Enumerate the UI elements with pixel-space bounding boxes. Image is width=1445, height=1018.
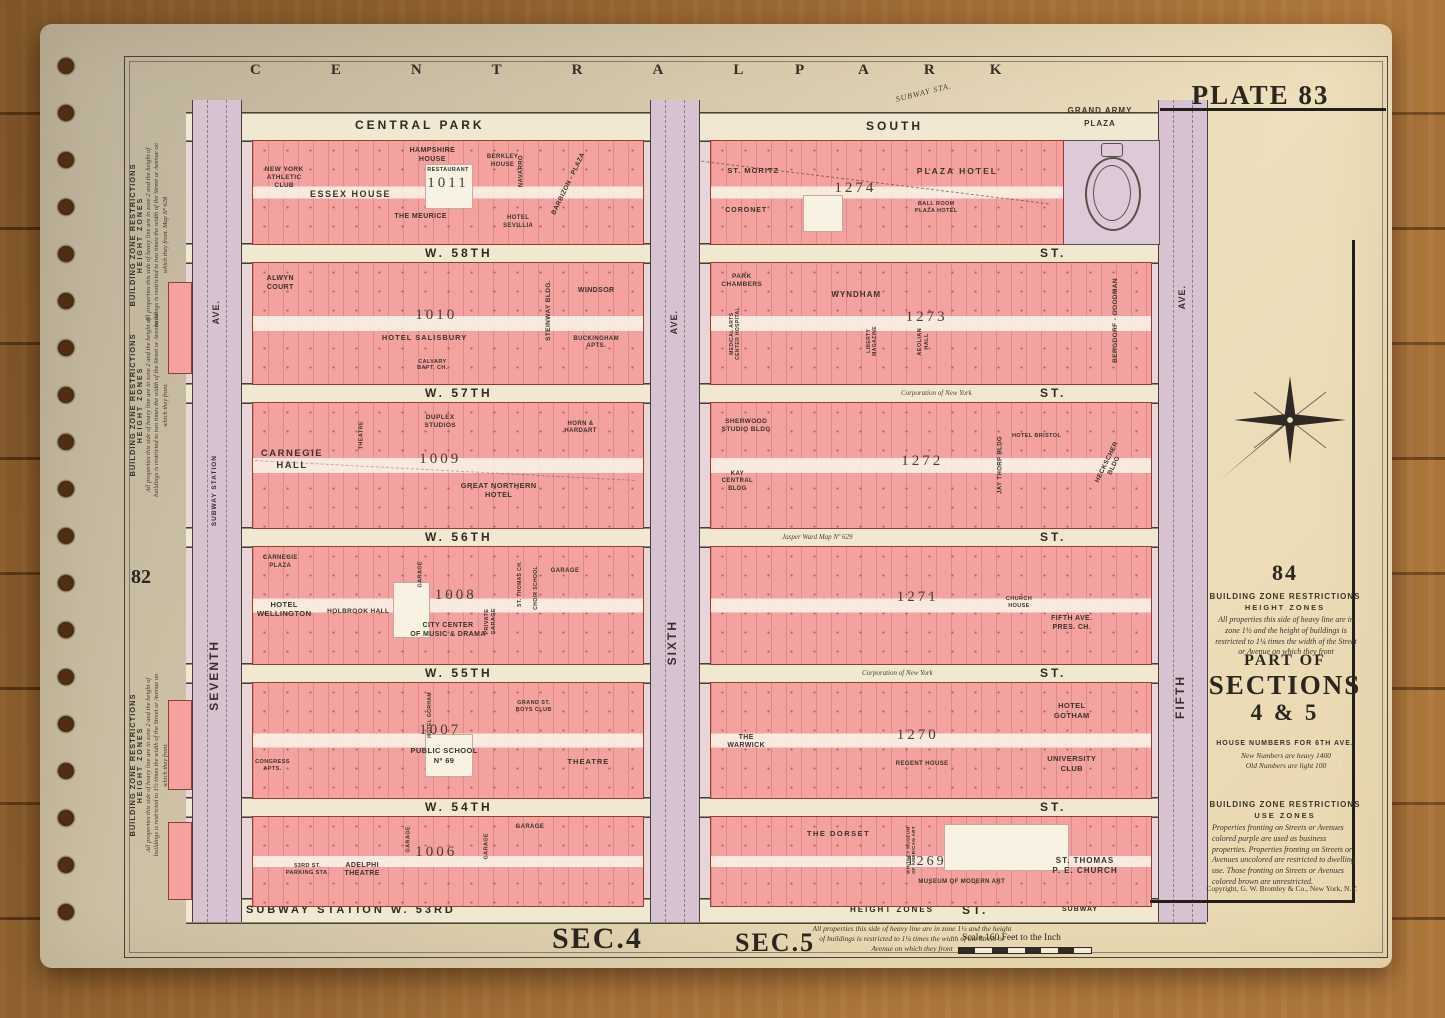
block-1272: 1272 SHERWOOD STUDIO BLDG KAY CENTRAL BL… bbox=[710, 402, 1152, 529]
label-buckingham: BUCKINGHAM APTS. bbox=[573, 336, 619, 351]
w56-label: W. 56TH bbox=[425, 530, 493, 544]
note-subheading: HEIGHT ZONES bbox=[137, 670, 144, 860]
label-garage-b: GARAGE bbox=[551, 568, 580, 576]
fifth-ave-ave: AVE. bbox=[1177, 285, 1187, 309]
label-congress-apts: CONGRESS APTS. bbox=[255, 759, 290, 773]
grand-army-plaza bbox=[1062, 140, 1160, 245]
w55-st: ST. bbox=[1040, 666, 1066, 680]
label-heckscher: HECKSCHER BLDG bbox=[1094, 440, 1128, 487]
label-wyndham: WYNDHAM bbox=[831, 290, 881, 300]
note-body: All properties this side of heavy line a… bbox=[145, 140, 170, 330]
cps-south-label: SOUTH bbox=[866, 119, 923, 133]
label-medical-arts: MEDICAL ARTS CENTER HOSPITAL bbox=[729, 307, 742, 360]
w58-label: W. 58TH bbox=[425, 246, 493, 260]
label-aeolian-hall: AEOLIAN HALL bbox=[918, 328, 932, 356]
moma-garden-cutout bbox=[944, 824, 1069, 871]
label-windsor: WINDSOR bbox=[578, 287, 615, 296]
label-restaurant: RESTAURANT bbox=[427, 167, 468, 174]
block-1010: 1010 ALWYN COURT HOTEL SALISBURY CALVARY… bbox=[252, 262, 644, 385]
block-number-1006: 1006 bbox=[415, 844, 457, 861]
central-park-title-left: CENTRAL bbox=[250, 62, 813, 79]
block-number-1274: 1274 bbox=[834, 180, 876, 197]
use-zones-body: Properties fronting on Streets or Avenue… bbox=[1212, 823, 1360, 888]
photo-scene: CENTRAL PARK SUBWAY STA. PLATE 83 CENTRA… bbox=[0, 0, 1445, 1018]
sec4-label: SEC.4 bbox=[552, 922, 643, 956]
label-parking-sta: 53RD ST. PARKING STA. bbox=[286, 863, 329, 877]
compass-rose bbox=[1210, 372, 1360, 487]
block-number-1008: 1008 bbox=[435, 587, 477, 604]
block-1274: 1274 ST. MORITZ CORONET PLAZA HOTEL BALL… bbox=[710, 140, 1064, 245]
left-zone-note-2: BUILDING ZONE RESTRICTIONS HEIGHT ZONES … bbox=[128, 310, 184, 500]
scale-label: Scale 160 Feet to the Inch bbox=[962, 933, 1061, 943]
w55-corp-note: Corporation of New York bbox=[862, 669, 933, 677]
label-calvary-bapt: CALVARY BAPT. CH. bbox=[417, 359, 448, 373]
note-heading: BUILDING ZONE RESTRICTIONS bbox=[128, 670, 137, 860]
label-garage-1006b: GARAGE bbox=[484, 833, 491, 860]
sections-number: 4 & 5 bbox=[1205, 700, 1365, 726]
block-1006: 1006 53RD ST. PARKING STA. ADELPHI THEAT… bbox=[252, 816, 644, 907]
label-alwyn-court: ALWYN COURT bbox=[267, 275, 294, 293]
label-hampshire-house: HAMPSHIRE HOUSE bbox=[410, 147, 456, 165]
w54-st: ST. bbox=[1040, 800, 1066, 814]
label-fifth-ave-pres: FIFTH AVE. PRES. CH. bbox=[1051, 615, 1092, 633]
block-1011: 1011 NEW YORK ATHLETIC CLUB ESSEX HOUSE … bbox=[252, 140, 644, 245]
w54-label: W. 54TH bbox=[425, 800, 493, 814]
w56-jasper-note: Jasper Ward Map Nº 629 bbox=[782, 533, 853, 541]
label-carnegie-plaza: CARNEGIE PLAZA bbox=[263, 555, 298, 570]
label-liberty-magazine: LIBERTY MAGAZINE bbox=[865, 326, 878, 356]
label-private-garage: PRIVATE GARAGE bbox=[484, 608, 498, 635]
label-kay-central: KAY CENTRAL BLDG bbox=[722, 471, 753, 494]
sec5-label: SEC.5 bbox=[735, 928, 815, 958]
label-hotel-bristol: HOTEL BRISTOL bbox=[1012, 433, 1061, 440]
block-1009: 1009 CARNEGIE HALL THEATRE DUPLEX STUDIO… bbox=[252, 402, 644, 529]
house-numbers-heading: HOUSE NUMBERS FOR 6TH AVE. bbox=[1216, 740, 1354, 749]
label-berkley-house: BERKLEY HOUSE bbox=[487, 154, 518, 169]
label-barbizon-plaza: BARBIZON - PLAZA bbox=[550, 152, 587, 217]
sixth-ave-label: SIXTH bbox=[665, 620, 679, 665]
note-body: All properties this side of heavy line a… bbox=[145, 310, 170, 500]
block-number-1007: 1007 bbox=[419, 722, 461, 739]
courtyard-cutout bbox=[803, 195, 844, 232]
right-bzr-subheading: HEIGHT ZONES bbox=[1245, 603, 1325, 612]
block-number-1009: 1009 bbox=[419, 451, 461, 468]
adjacent-plate-82: 82 bbox=[131, 566, 151, 589]
label-nyac: NEW YORK ATHLETIC CLUB bbox=[265, 166, 304, 190]
label-theatre-54: THEATRE bbox=[567, 757, 609, 766]
block-number-1010: 1010 bbox=[415, 307, 457, 324]
label-choir-school: CHOIR SCHOOL bbox=[533, 566, 539, 610]
sections-label: SECTIONS bbox=[1200, 670, 1370, 701]
label-hotel-wellington: HOTEL WELLINGTON bbox=[257, 600, 311, 619]
block-1270: 1270 THE WARWICK REGENT HOUSE HOTEL GOTH… bbox=[710, 682, 1152, 799]
label-steinway-bldg: STEINWAY BLDG. bbox=[545, 280, 553, 341]
label-the-dorset: THE DORSET bbox=[807, 829, 870, 838]
note-subheading: HEIGHT ZONES bbox=[137, 140, 144, 330]
label-st-thomas-ch: ST. THOMAS CH. bbox=[517, 561, 523, 607]
plaza-fountain-inner bbox=[1093, 165, 1131, 221]
label-holbrook-hall: HOLBROOK HALL bbox=[327, 608, 389, 616]
label-st-thomas-church: ST. THOMAS P. E. CHURCH bbox=[1052, 856, 1117, 876]
note-heading: BUILDING ZONE RESTRICTIONS bbox=[128, 140, 137, 330]
left-zone-note-3: BUILDING ZONE RESTRICTIONS HEIGHT ZONES … bbox=[128, 670, 184, 860]
left-zone-note-1: BUILDING ZONE RESTRICTIONS HEIGHT ZONES … bbox=[128, 140, 184, 330]
label-horn-hardart: HORN & HARDART bbox=[564, 421, 596, 436]
w57-label: W. 57TH bbox=[425, 386, 493, 400]
w57-st: ST. bbox=[1040, 386, 1066, 400]
plate-title: PLATE 83 bbox=[1168, 80, 1353, 111]
label-garage-1006a: GARAGE bbox=[406, 826, 413, 853]
label-university-club: UNIVERSITY CLUB bbox=[1047, 754, 1096, 773]
label-bergdorf-goodman: BERGDORF - GOODMAN bbox=[1112, 278, 1120, 363]
grand-army-label-2: PLAZA bbox=[1084, 119, 1116, 129]
label-hotel-gotham: HOTEL GOTHAM bbox=[1054, 701, 1090, 720]
note-subheading: HEIGHT ZONES bbox=[137, 310, 144, 500]
label-hotel-gorham: HOTEL GORHAM bbox=[427, 692, 433, 738]
note-heading: BUILDING ZONE RESTRICTIONS bbox=[128, 310, 137, 500]
seventh-ave-ave: AVE. bbox=[211, 300, 221, 324]
label-ballroom: BALL ROOM PLAZA HOTEL bbox=[915, 201, 958, 215]
block-1271: 1271 CHURCH HOUSE FIFTH AVE. PRES. CH. bbox=[710, 546, 1152, 665]
label-sherwood-studio: SHERWOOD STUDIO BLDG bbox=[722, 418, 771, 434]
label-regent-house: REGENT HOUSE bbox=[896, 761, 949, 769]
w58-st: ST. bbox=[1040, 246, 1066, 260]
plaza-monument bbox=[1101, 143, 1123, 157]
use-zones-subheading: USE ZONES bbox=[1254, 811, 1315, 820]
label-the-warwick: THE WARWICK bbox=[727, 734, 765, 752]
label-public-school-69: PUBLIC SCHOOL Nº 69 bbox=[410, 746, 477, 765]
grand-army-label-1: GRAND ARMY bbox=[1068, 106, 1133, 116]
label-church-house: CHURCH HOUSE bbox=[1006, 596, 1032, 610]
label-garage-1006c: GARAGE bbox=[516, 824, 545, 832]
sixth-avenue: SIXTH AVE. bbox=[650, 100, 700, 922]
label-coronet: CORONET bbox=[725, 207, 767, 216]
label-plaza-hotel: PLAZA HOTEL bbox=[917, 166, 998, 177]
label-city-center: CITY CENTER OF MUSIC & DRAMA bbox=[410, 622, 486, 640]
fifth-avenue: FIFTH AVE. bbox=[1158, 100, 1208, 922]
label-jay-thorp: JAY THORP BLDG bbox=[998, 436, 1006, 494]
block-number-1272: 1272 bbox=[901, 453, 943, 470]
binder-holes bbox=[56, 52, 76, 947]
label-moma: MUSEUM OF MODERN ART bbox=[918, 879, 1005, 887]
w55-label: W. 55TH bbox=[425, 666, 493, 680]
right-bzr-heading: BUILDING ZONE RESTRICTIONS bbox=[1210, 592, 1361, 602]
seventh-avenue: SEVENTH AVE. SUBWAY STATION bbox=[192, 100, 242, 922]
fifth-ave-label: FIFTH bbox=[1173, 675, 1187, 719]
w53-subway: SUBWAY bbox=[1062, 906, 1098, 913]
label-garage-a: GARAGE bbox=[417, 561, 424, 588]
label-essex-house: ESSEX HOUSE bbox=[310, 189, 391, 200]
seventh-ave-label: SEVENTH bbox=[207, 640, 221, 711]
label-navarro: NAVARRO bbox=[518, 155, 526, 187]
central-park-title-right: PARK bbox=[795, 62, 1056, 79]
use-zones-heading: BUILDING ZONE RESTRICTIONS bbox=[1210, 800, 1361, 810]
note-body: All properties this side of heavy line a… bbox=[145, 670, 170, 860]
label-adelphi-theatre: ADELPHI THEATRE bbox=[345, 862, 380, 880]
label-hotel-sevillia: HOTEL SEVILLIA bbox=[503, 215, 533, 230]
block-1007: 1007 CONGRESS APTS. HOTEL GORHAM PUBLIC … bbox=[252, 682, 644, 799]
block-number-1273: 1273 bbox=[906, 309, 948, 326]
seventh-ave-subway-station: SUBWAY STATION bbox=[211, 455, 218, 526]
label-hotel-salisbury: HOTEL SALISBURY bbox=[382, 333, 467, 342]
margin-heavy-hline bbox=[1150, 900, 1355, 903]
w57-corp-note: Corporation of New York bbox=[901, 389, 972, 397]
part-of-label: PART OF bbox=[1205, 652, 1365, 670]
scale-bar bbox=[958, 947, 1092, 954]
block-number-1271: 1271 bbox=[897, 589, 939, 606]
house-numbers-line2: Old Numbers are light 100 bbox=[1212, 761, 1360, 771]
label-theatre-56: THEATRE bbox=[359, 421, 366, 449]
block-1269: 1269 THE DORSET WHITNEY MUSEUM OF AMERIC… bbox=[710, 816, 1152, 907]
block-1008: 1008 CARNEGIE PLAZA HOTEL WELLINGTON HOL… bbox=[252, 546, 644, 665]
block-1273: 1273 PARK CHAMBERS MEDICAL ARTS CENTER H… bbox=[710, 262, 1152, 385]
house-numbers-line1: New Numbers are heavy 1400 bbox=[1212, 751, 1360, 761]
cps-label: CENTRAL PARK bbox=[355, 118, 485, 132]
label-duplex-studios: DUPLEX STUDIOS bbox=[424, 414, 456, 430]
label-the-meurice: THE MEURICE bbox=[394, 213, 447, 222]
copyright-line: Copyright, G. W. Bromley & Co., New York… bbox=[1206, 884, 1358, 894]
w56-st: ST. bbox=[1040, 530, 1066, 544]
label-grand-st-boys-club: GRAND ST. BOYS CLUB bbox=[516, 700, 552, 714]
label-park-chambers: PARK CHAMBERS bbox=[721, 273, 762, 289]
adjacent-plate-84: 84 bbox=[1205, 560, 1365, 586]
block-number-1011: 1011 bbox=[427, 175, 468, 192]
block-number-1270: 1270 bbox=[897, 727, 939, 744]
label-great-northern: GREAT NORTHERN HOTEL bbox=[461, 481, 537, 500]
label-whitney-museum: WHITNEY MUSEUM OF AMERICAN ART bbox=[906, 826, 917, 874]
sixth-ave-ave: AVE. bbox=[669, 310, 679, 334]
